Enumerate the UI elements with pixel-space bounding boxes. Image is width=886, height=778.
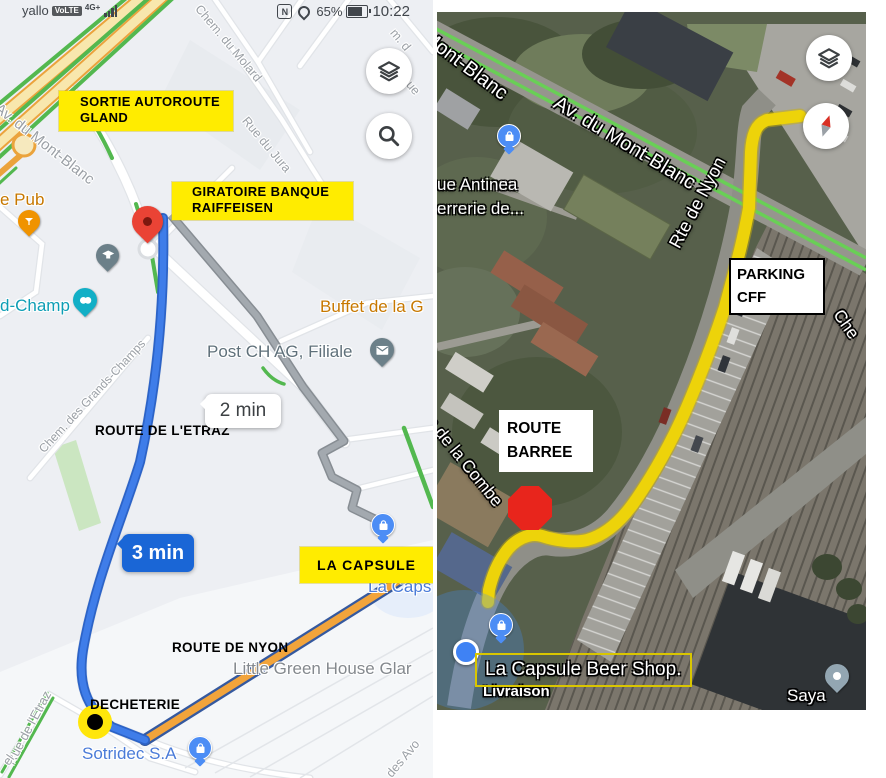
poi-champ[interactable]: d-Champ: [0, 296, 70, 316]
nfc-icon: N: [277, 4, 292, 19]
search-button[interactable]: [366, 113, 412, 159]
poi-little-green[interactable]: Little Green House Glar: [233, 659, 412, 679]
pin-dot-icon: [833, 672, 841, 680]
annotation-route-nyon: ROUTE DE NYON: [172, 640, 288, 655]
poi-errerie[interactable]: errerie de...: [437, 199, 524, 219]
compass-button[interactable]: [803, 103, 849, 149]
layers-button[interactable]: [366, 48, 412, 94]
composite-screenshot: Av. du Mont-Blanc Chem. du Molard Rue du…: [0, 0, 886, 778]
graduation-cap-icon: [102, 251, 114, 261]
map-panel-satellite[interactable]: Mont-Blanc Av. du Mont-Blanc Rte de Nyon…: [437, 12, 866, 710]
poi-post[interactable]: Post CH AG, Filiale: [207, 342, 353, 362]
annotation-giratoire: GIRATOIRE BANQUE RAIFFEISEN: [172, 182, 353, 220]
location-icon: [296, 3, 313, 20]
carrier-label: yallo: [22, 3, 49, 18]
volte-badge: VoLTE: [52, 6, 82, 16]
layers-icon: [377, 59, 401, 83]
layers-icon: [817, 46, 841, 70]
annotation-la-capsule: LA CAPSULE: [300, 547, 433, 583]
clock: 10:22: [372, 3, 410, 20]
annotation-capsule-shop[interactable]: La Capsule Beer Shop.: [475, 653, 692, 687]
battery-icon: [346, 5, 368, 18]
cocktail-icon: [24, 216, 34, 226]
poi-sotridec[interactable]: Sotridec S.A: [82, 744, 177, 764]
search-icon: [377, 124, 401, 148]
annotation-parking-cff: PARKING CFF: [729, 258, 825, 315]
map-panel-roadmap[interactable]: Av. du Mont-Blanc Chem. du Molard Rue du…: [0, 0, 433, 778]
status-bar: yallo VoLTE 4G+ N 65% 10:22: [0, 0, 433, 24]
annotation-decheterie: DECHETERIE: [90, 697, 180, 712]
signal-icon: [104, 5, 117, 17]
annotation-sortie-autoroute: SORTIE AUTOROUTE GLAND: [59, 91, 233, 131]
alt-route-time-bubble[interactable]: 2 min: [205, 394, 281, 428]
network-label: 4G+: [85, 3, 100, 12]
pin-dot-icon: [143, 217, 152, 226]
antinea-shop-pin[interactable]: [497, 124, 521, 148]
poi-saya[interactable]: Saya: [787, 686, 826, 706]
sotridec-pin[interactable]: [188, 736, 212, 760]
decheterie-marker-dot: [87, 714, 103, 730]
la-capsule-pin[interactable]: [371, 513, 395, 537]
poi-antinea[interactable]: ue Antinea: [437, 175, 517, 195]
annotation-route-barree: ROUTE BARREE: [499, 410, 593, 472]
capsule-shop-pin[interactable]: [489, 613, 513, 637]
selected-route-time-bubble[interactable]: 3 min: [122, 534, 194, 572]
theater-masks-icon: [79, 296, 91, 305]
poi-pub[interactable]: e Pub: [0, 190, 44, 210]
satellite-layers-button[interactable]: [806, 35, 852, 81]
mail-icon: [376, 346, 388, 355]
compass-icon: [813, 113, 839, 139]
poi-buffet[interactable]: Buffet de la G: [320, 297, 424, 317]
battery-percent: 65%: [316, 4, 342, 19]
